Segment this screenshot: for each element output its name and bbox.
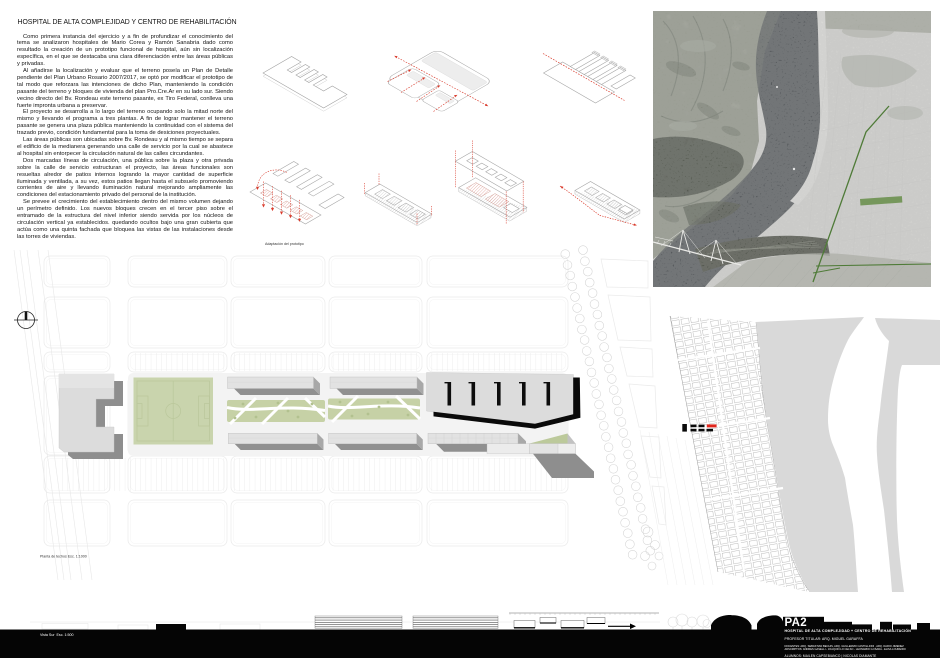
svg-text:Adaptación del prototipo: Adaptación del prototipo: [265, 242, 304, 246]
svg-text:Planta de techos Esc. 1:1000: Planta de techos Esc. 1:1000: [40, 555, 87, 559]
